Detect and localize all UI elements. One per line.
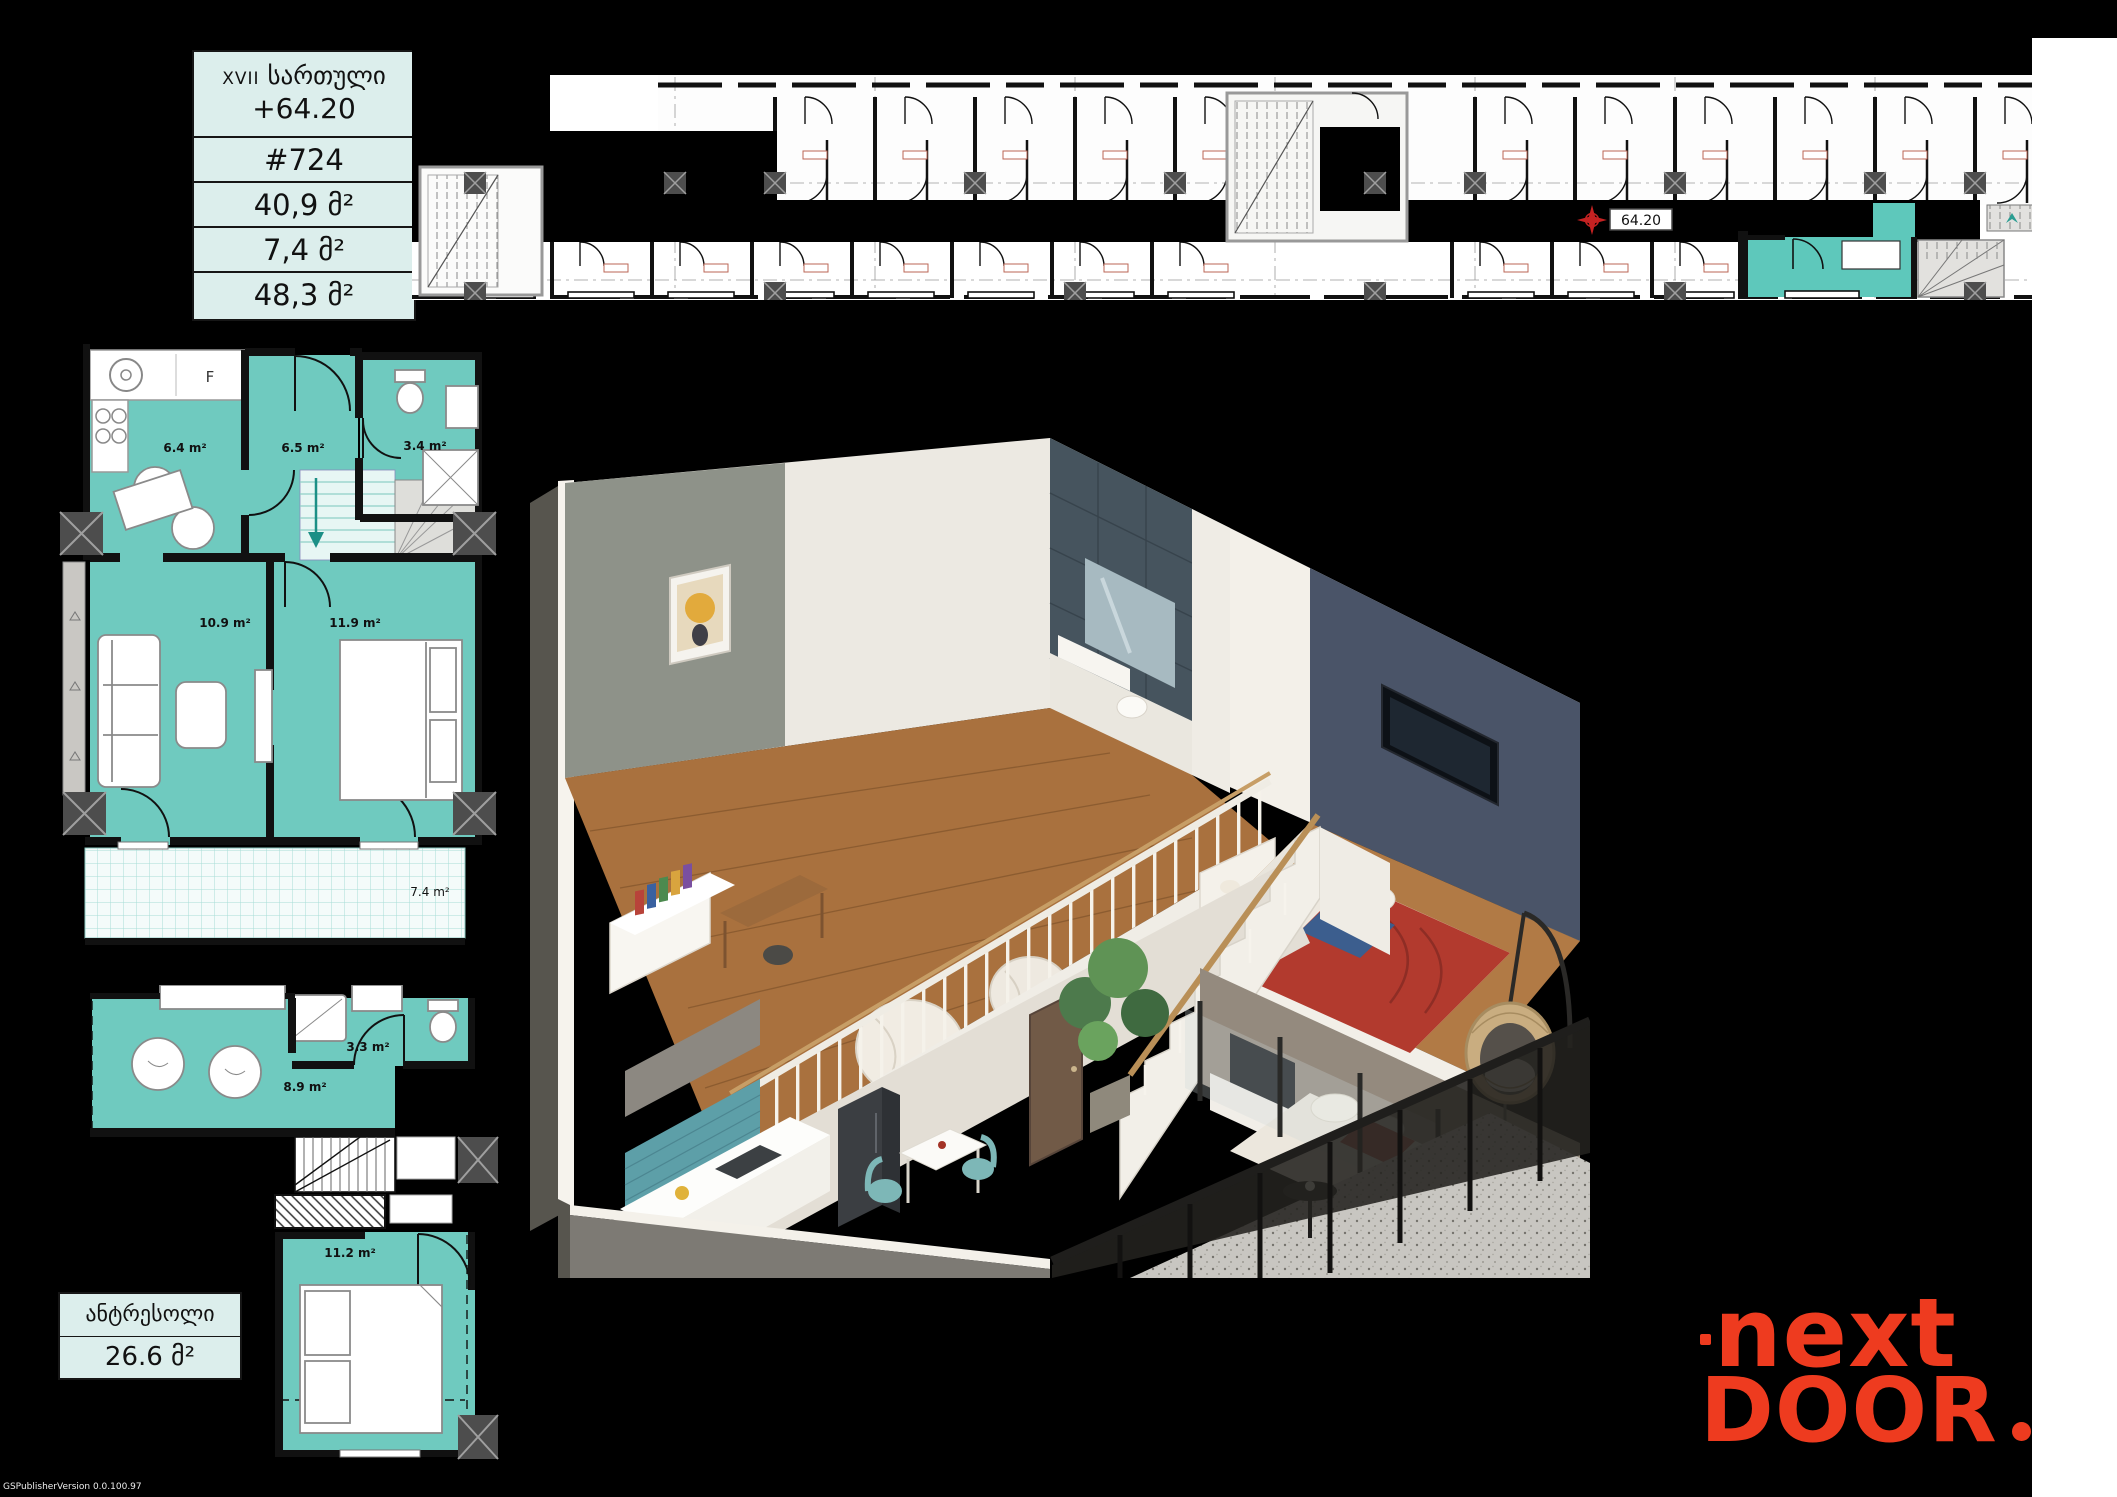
desk-chair <box>763 945 793 965</box>
mezzanine-area: 26.6 მ² <box>60 1337 240 1379</box>
pillow <box>305 1291 350 1355</box>
pouf <box>209 1046 261 1098</box>
balcony <box>85 842 465 945</box>
dining-chair-3d <box>962 1158 994 1180</box>
mezz-hall-area-label: 8.9 m² <box>283 1080 326 1094</box>
mezz-bed-area-label: 11.2 m² <box>324 1246 376 1260</box>
pouf <box>132 1038 184 1090</box>
sheet-right-margin <box>2032 38 2117 1497</box>
bedroom-area-label: 11.9 m² <box>329 616 381 630</box>
nextdoor-logo: next DOOR <box>1700 1296 2040 1447</box>
elevation-marker: 64.20 <box>1577 205 1672 235</box>
apartment-3d-render <box>430 353 1590 1278</box>
coffee-table <box>176 682 226 748</box>
watermark: GSPublisherVersion 0.0.100.97 <box>3 1482 142 1492</box>
mezz-bed <box>300 1285 442 1433</box>
logo-n-dot-icon <box>1700 1334 1711 1345</box>
floor-label: XVII სართული <box>222 63 386 89</box>
logo-text-door: DOOR <box>1700 1358 1998 1462</box>
mezzanine-title: ანტრესოლი <box>60 1294 240 1337</box>
fridge-label: F <box>206 368 215 386</box>
unit-area-net: 40,9 მ² <box>194 181 414 226</box>
dining-chair-3d <box>868 1179 902 1203</box>
floor-word: სართული <box>267 61 385 90</box>
core-block <box>545 131 777 231</box>
pillow <box>305 1361 350 1423</box>
hall-area-label: 6.5 m² <box>281 441 324 455</box>
toilet-tank <box>395 370 425 382</box>
info-floor-cell: XVII სართული +64.20 <box>194 52 414 136</box>
sofa <box>98 635 160 787</box>
unit-info-table: XVII სართული +64.20 #724 40,9 მ² 7,4 მ² … <box>192 50 416 321</box>
bath-sink <box>352 985 402 1011</box>
toilet-3d <box>1117 696 1147 718</box>
mezzanine-label-box: ანტრესოლი 26.6 მ² <box>58 1292 242 1380</box>
unit-number: #724 <box>194 136 414 181</box>
logo-line2: DOOR <box>1700 1374 2040 1447</box>
kitchen-area-label: 6.4 m² <box>163 441 206 455</box>
floor-elevation: +64.20 <box>252 92 356 125</box>
stair-core-center <box>1227 93 1407 241</box>
building-floor-plan: 64.20 <box>412 35 2032 300</box>
mezz-bath-area-label: 3.3 m² <box>346 1040 389 1054</box>
threshold <box>340 1450 420 1457</box>
wardrobe <box>255 670 272 762</box>
living-area-label: 10.9 m² <box>199 616 251 630</box>
elevation-marker-label: 64.20 <box>1621 213 1661 229</box>
fridge <box>838 1087 882 1227</box>
stair-fan-right <box>1918 240 2004 297</box>
unit-area-total: 48,3 მ² <box>194 271 414 316</box>
void-hatch <box>275 1195 385 1228</box>
sink-icon <box>110 359 142 391</box>
logo-period-icon <box>2012 1422 2031 1441</box>
page: XVII სართული +64.20 #724 40,9 მ² 7,4 მ² … <box>0 0 2117 1497</box>
counter <box>160 985 285 1009</box>
unit-area-balcony: 7,4 მ² <box>194 226 414 271</box>
floor-roman: XVII <box>222 69 259 89</box>
toilet-icon <box>397 383 423 413</box>
kettle <box>675 1186 689 1200</box>
